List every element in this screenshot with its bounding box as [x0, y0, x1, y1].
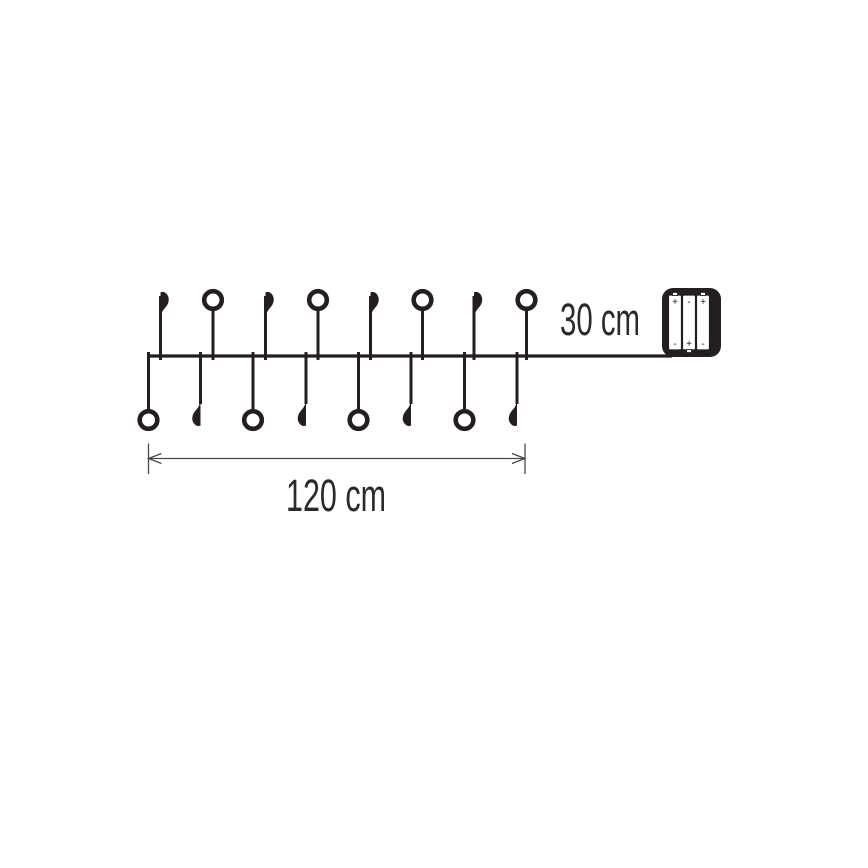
bulb-light	[244, 411, 262, 429]
bulb-light	[456, 411, 474, 429]
lead-length-label: 30 cm	[560, 294, 640, 345]
bulb-light	[140, 411, 158, 429]
total-length-label: 120 cm	[286, 470, 386, 521]
bulb-light	[518, 291, 536, 309]
leaf-light	[474, 292, 482, 316]
lights-group	[140, 291, 536, 429]
leaf-light	[266, 292, 274, 316]
leaf-light	[371, 292, 379, 316]
battery-terminal-nub	[701, 292, 706, 295]
battery-polarity-top: +	[672, 297, 678, 308]
diagram-canvas: +--++- 120 cm 30 cm	[0, 0, 868, 868]
battery-polarity-bottom: +	[686, 339, 692, 350]
bulb-light	[204, 291, 222, 309]
battery-polarity-top: -	[687, 297, 690, 308]
bulb-light	[414, 291, 432, 309]
string-lights-dimension-diagram: +--++- 120 cm 30 cm	[0, 0, 868, 868]
battery-polarity-bottom: -	[701, 339, 704, 350]
battery-polarity-bottom: -	[673, 339, 676, 350]
leaf-light	[192, 402, 200, 426]
battery-polarity-top: +	[700, 297, 706, 308]
leaf-light	[298, 402, 306, 426]
bulb-light	[350, 411, 368, 429]
leaf-light	[403, 402, 411, 426]
battery-terminal-nub	[687, 350, 692, 353]
leaf-light	[509, 402, 517, 426]
battery-terminal-nub	[673, 292, 678, 295]
bulb-light	[309, 291, 327, 309]
leaf-light	[161, 292, 169, 316]
battery-box-group: +--++-	[662, 288, 721, 357]
